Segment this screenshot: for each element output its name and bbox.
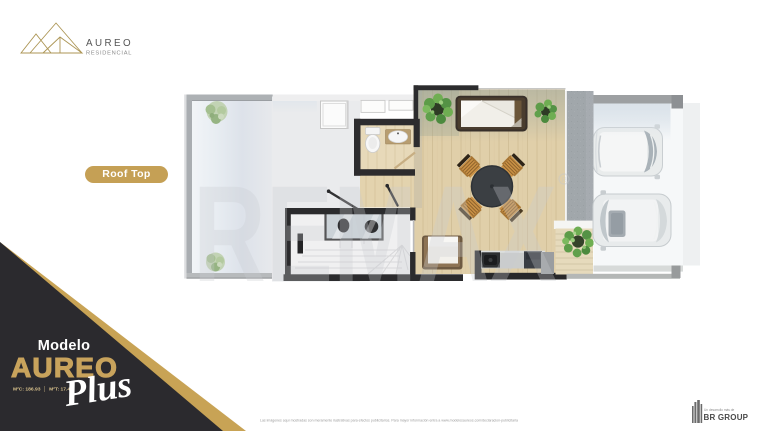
svg-text:Un desarrollo más de: Un desarrollo más de (704, 408, 735, 412)
svg-text:BR GROUP: BR GROUP (704, 413, 749, 422)
